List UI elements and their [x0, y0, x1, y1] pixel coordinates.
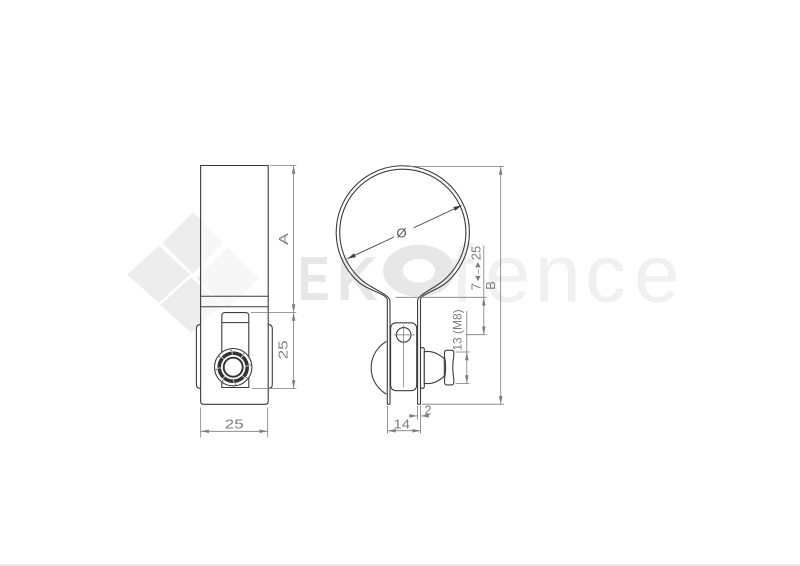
- svg-text:E: E: [298, 244, 329, 314]
- svg-text:Ø: Ø: [396, 226, 406, 241]
- svg-text:13 (M8): 13 (M8): [451, 309, 465, 350]
- svg-text:n: n: [535, 229, 581, 320]
- svg-text:25: 25: [276, 340, 291, 359]
- svg-text:K: K: [337, 245, 378, 313]
- svg-text:e: e: [485, 229, 531, 320]
- svg-text:A: A: [277, 232, 291, 245]
- svg-text:2: 2: [424, 403, 431, 418]
- svg-text:e: e: [634, 229, 680, 320]
- svg-text:25: 25: [225, 417, 244, 432]
- svg-text:B: B: [483, 281, 498, 290]
- svg-text:c: c: [585, 229, 626, 320]
- svg-text:14: 14: [393, 417, 410, 432]
